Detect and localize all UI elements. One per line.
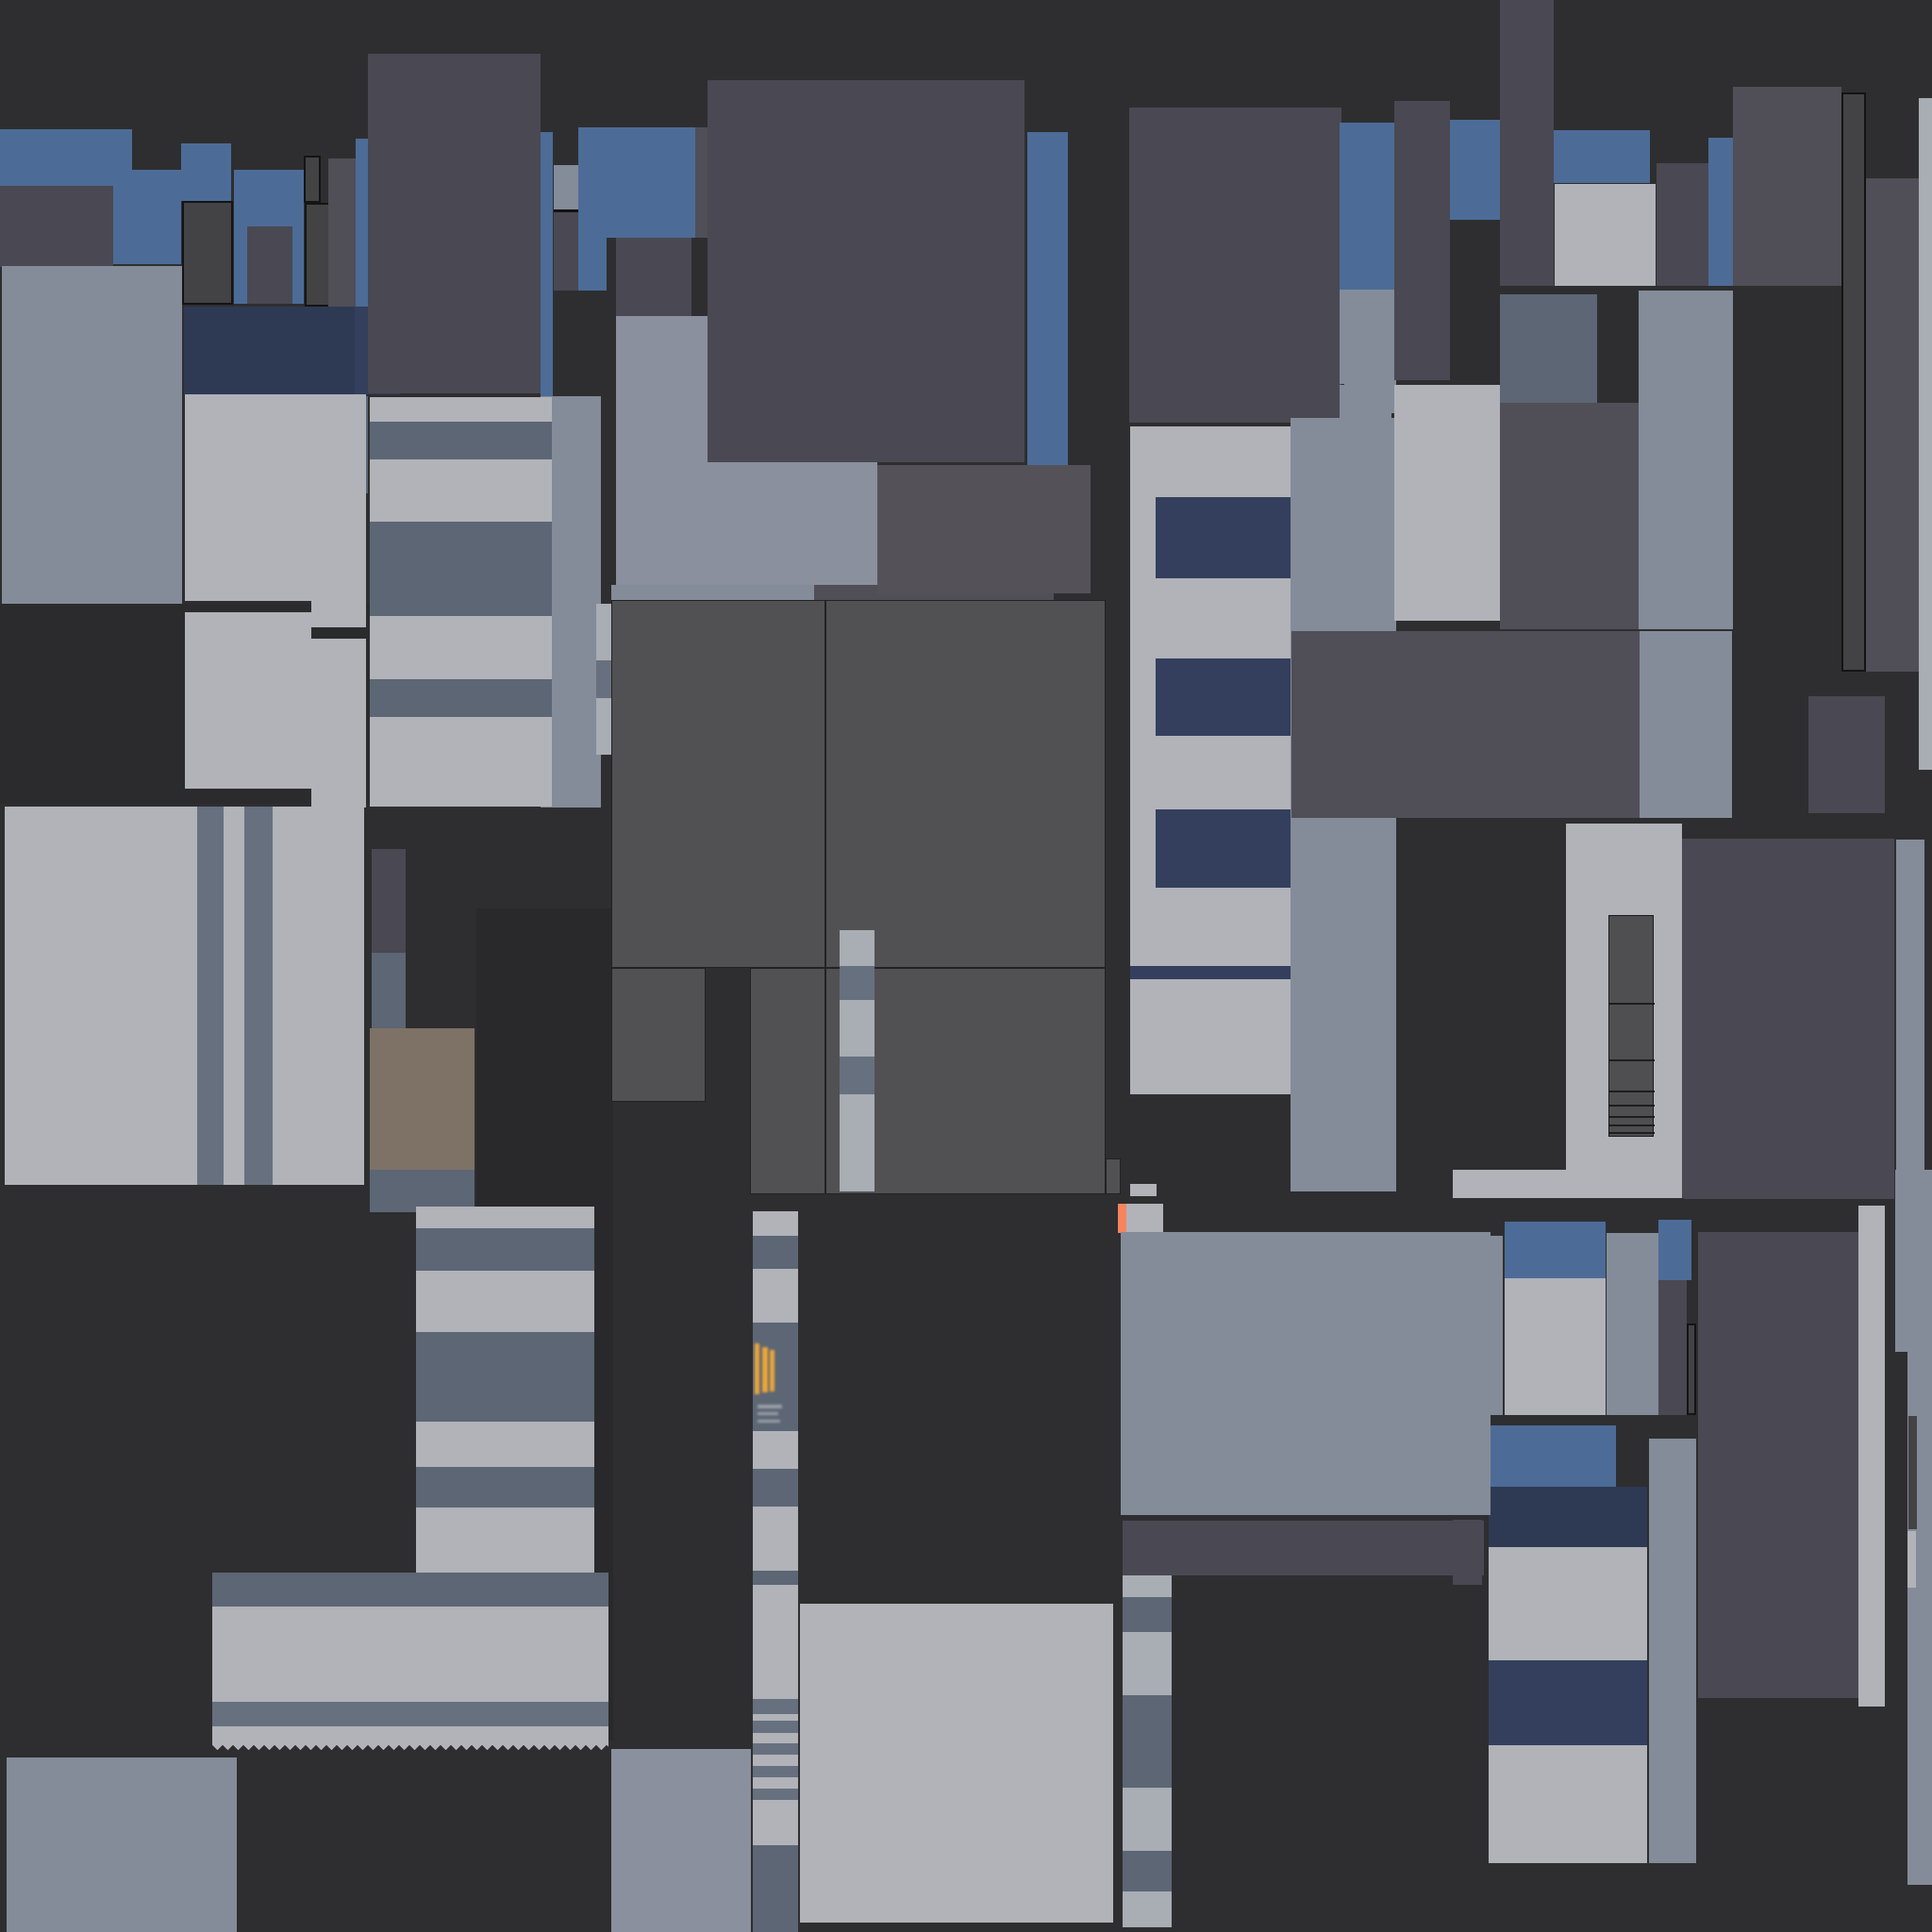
orange-light2	[1130, 1184, 1157, 1196]
r2-dark-big	[1682, 839, 1894, 1198]
lc-brown	[370, 1028, 475, 1170]
sign-glyph-b	[762, 1347, 768, 1392]
lr-dark-big	[1698, 1232, 1862, 1698]
tl-blue-diag-b	[234, 170, 304, 225]
lr-navy-b	[1489, 1660, 1647, 1745]
tl-blue-bar	[356, 139, 368, 307]
tl-light-c	[185, 612, 311, 789]
r2-ladder-band-4	[1609, 1116, 1655, 1118]
lr-muted-corner	[1895, 1170, 1932, 1352]
tr-muted-b	[1340, 385, 1391, 621]
r2-ladder-band-0	[1609, 1003, 1655, 1005]
sign-caption-2	[758, 1412, 778, 1415]
tr-blue-c	[1554, 130, 1650, 183]
tr-tower	[1500, 0, 1554, 286]
ct-striped-tower	[370, 397, 552, 807]
lr-banded-col-band-1	[1123, 1695, 1172, 1788]
tr-light-sliver	[1919, 98, 1932, 770]
lr-dark-col	[1658, 1280, 1687, 1415]
tr-blue-a	[1340, 123, 1394, 220]
ct-big-tower	[708, 80, 1024, 462]
r2-ladder	[1608, 915, 1654, 1137]
tr-slate-blk	[1500, 294, 1597, 403]
ct-muted-a	[616, 316, 708, 601]
tr-muted-c	[1639, 291, 1733, 403]
bc-sign-col-band-6	[753, 1743, 798, 1755]
lr-banded-col-band-0	[1123, 1597, 1172, 1632]
rm-light-facade-band-2	[1156, 809, 1291, 888]
bc-wide-blk-band-0	[212, 1573, 608, 1607]
grid-fine	[611, 600, 825, 968]
sign-caption-3	[758, 1420, 780, 1423]
tr-dark2-big	[1733, 87, 1841, 286]
lr-big-muted	[1121, 1232, 1491, 1515]
rm-dark-blk	[1129, 108, 1341, 423]
ct-muted-b	[708, 462, 877, 601]
r2-muted-a	[1640, 631, 1732, 818]
tr-light-a	[1394, 385, 1500, 621]
sign-glyph-a	[755, 1343, 759, 1394]
tr-light-b	[1555, 184, 1656, 286]
bc-wide-blk	[212, 1573, 608, 1752]
bc-striped-col	[416, 1207, 594, 1574]
lc-slate-c	[372, 953, 406, 1028]
r2-ladder-band-1	[1609, 1059, 1655, 1061]
rg-col	[840, 930, 874, 1191]
ct-dark-sm	[554, 209, 578, 291]
ct-dark-sliver	[695, 127, 708, 238]
ct-gray-sm	[554, 165, 578, 209]
ct-dark-tower	[368, 54, 541, 393]
rm-light-facade-band-3	[1130, 966, 1291, 979]
lr-light-c	[1489, 1547, 1647, 1660]
r2-muted-strip	[1896, 840, 1924, 1198]
r2-ladder-band-5	[1609, 1124, 1655, 1126]
ct-muted-band	[611, 585, 814, 600]
orange-marker	[1118, 1204, 1126, 1233]
tr-dark2-d	[1500, 403, 1639, 629]
lr-framed-thin	[1687, 1324, 1696, 1415]
orange-light	[1126, 1204, 1163, 1234]
rm-light-facade-band-1	[1156, 658, 1291, 736]
r2-ladder-band-3	[1609, 1105, 1655, 1107]
tl-framed-sm	[304, 156, 321, 203]
ct-dark3-blk	[877, 465, 1091, 593]
sign-glyph-c	[770, 1350, 774, 1391]
tl-framed-b	[305, 203, 330, 307]
tl-blue-strip	[0, 129, 132, 186]
rm-light-facade	[1130, 426, 1291, 1094]
rm-light-facade-band-0	[1156, 497, 1291, 578]
lr-muted-col-c	[1649, 1439, 1696, 1863]
r2-ladder-band-2	[1609, 1091, 1655, 1092]
r2-far-light	[1907, 1531, 1916, 1588]
lr-navy-a	[1489, 1487, 1647, 1547]
ct-striped-tower-band-0	[370, 422, 552, 459]
tl-blue-diag	[113, 170, 181, 264]
bc-striped-col-band-1	[416, 1332, 594, 1422]
tl-dark-inset	[247, 226, 292, 304]
lr-blue-sm	[1658, 1220, 1691, 1280]
tr-blue-a2	[1340, 220, 1394, 290]
tr-muted-a	[1340, 290, 1394, 384]
tl-stripe-facade-band-1	[244, 807, 273, 1185]
lr-light-col	[1858, 1206, 1885, 1707]
tl-blue-win	[181, 143, 231, 201]
bc-wide-blk-band-1	[212, 1702, 608, 1726]
ct-striped-tower-band-1	[370, 522, 552, 616]
tr-dark2-c	[1866, 178, 1920, 672]
ct-striped-tower-band-2	[370, 679, 552, 717]
ct-blue-winblock	[578, 127, 695, 238]
texture-atlas-canvas	[0, 0, 1932, 1932]
r2-dark2-big	[1291, 631, 1640, 818]
tl-light-a	[185, 394, 311, 601]
bc-sign-col-band-8	[753, 1789, 798, 1800]
bc-sign-col-band-7	[753, 1766, 798, 1777]
tr-framed-dbl	[1841, 92, 1866, 672]
lr-light-d	[1489, 1745, 1647, 1863]
ct-blue-bar	[541, 132, 553, 396]
lr-banded-col	[1123, 1575, 1172, 1927]
bc-striped-col-band-2	[416, 1467, 594, 1507]
grid-coarse	[825, 600, 1106, 968]
bc-sign-col-band-9	[753, 1845, 798, 1932]
lr-light-blk	[1505, 1278, 1606, 1415]
rg-col-band-1	[840, 1057, 874, 1094]
tl-light-d	[311, 639, 366, 808]
lr-banded-col-band-2	[1123, 1851, 1172, 1891]
r2-ladder-band-6	[1609, 1132, 1655, 1134]
rg-sliver-band-0	[596, 660, 611, 698]
bc-wide-blk-sawtooth-edge	[212, 1744, 608, 1752]
bc-sign-col-band-4	[753, 1699, 798, 1714]
ct-dark-blk	[616, 238, 691, 316]
rg-col-band-0	[840, 966, 874, 1000]
r2-far-dark	[1908, 1416, 1917, 1529]
bc-sign-col-band-0	[753, 1236, 798, 1269]
r2-dark-sm	[1808, 696, 1885, 813]
bc-muted-low	[611, 1749, 751, 1932]
lr-dark-row	[1684, 1170, 1894, 1199]
bc-light-big	[800, 1604, 1113, 1923]
bc-sign-col	[753, 1211, 798, 1932]
lr-blue-blk	[1505, 1222, 1606, 1278]
tl-stripe-facade	[5, 807, 364, 1185]
ct-blue-sm	[578, 238, 607, 291]
rg-sliver	[596, 604, 611, 755]
lr-blue-zig	[1487, 1425, 1616, 1487]
bc-sign-col-band-2	[753, 1469, 798, 1507]
tr-blue-d	[1708, 138, 1733, 286]
tl-navy-block	[184, 307, 355, 394]
tl-framed-a	[182, 201, 233, 305]
lr-muted-col-b	[1607, 1233, 1658, 1415]
tl-stripe-facade-band-0	[197, 807, 224, 1185]
grid-corner	[1106, 1158, 1121, 1194]
grid-fine-low2	[750, 968, 825, 1194]
tl-light-b	[311, 394, 366, 627]
tr-dark-b	[1657, 163, 1709, 286]
grid-fine-low	[611, 968, 706, 1102]
lc-dark-a	[372, 849, 406, 953]
sign-caption-1	[758, 1405, 782, 1408]
lr-dark-band	[1123, 1521, 1484, 1575]
bc-sign-col-band-5	[753, 1721, 798, 1733]
lr-light-row	[1453, 1170, 1679, 1198]
tr-blue-b	[1450, 120, 1500, 220]
bc-sign-col-band-3	[753, 1571, 798, 1585]
tl-muted-facade	[2, 266, 182, 604]
bc-striped-col-band-0	[416, 1228, 594, 1271]
tr-dark-a	[1394, 101, 1450, 380]
tl-muted-low	[7, 1757, 237, 1932]
tr-muted-d	[1639, 403, 1733, 629]
tl-dark-wall	[0, 186, 113, 267]
